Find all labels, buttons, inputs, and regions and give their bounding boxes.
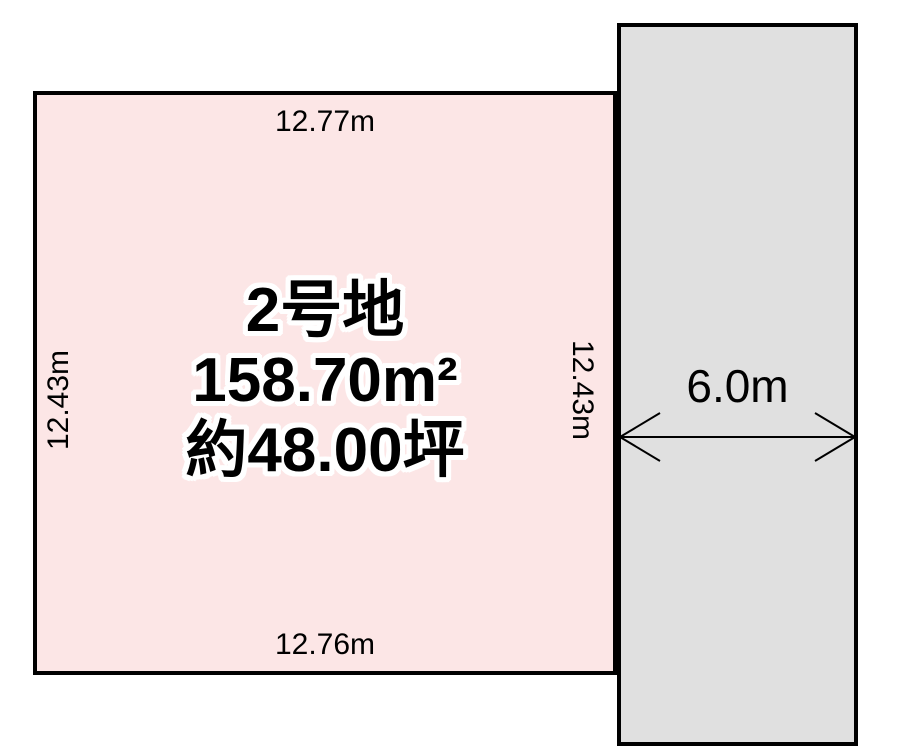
dim-bottom-label: 12.76m <box>33 627 617 663</box>
dim-top-label: 12.77m <box>33 104 617 140</box>
plot-area-tsubo: 約48.00坪 <box>33 416 617 486</box>
plot-name: 2号地 <box>33 276 617 346</box>
road-width-label: 6.0m <box>617 360 858 412</box>
land-plot-diagram: 12.77m 12.76m 12.43m 12.43m 2号地 158.70m²… <box>0 0 911 754</box>
plot-area-m2: 158.70m² <box>33 346 617 416</box>
plot-caption: 2号地 158.70m² 約48.00坪 <box>33 276 617 486</box>
road-width-arrow-icon <box>617 411 858 463</box>
